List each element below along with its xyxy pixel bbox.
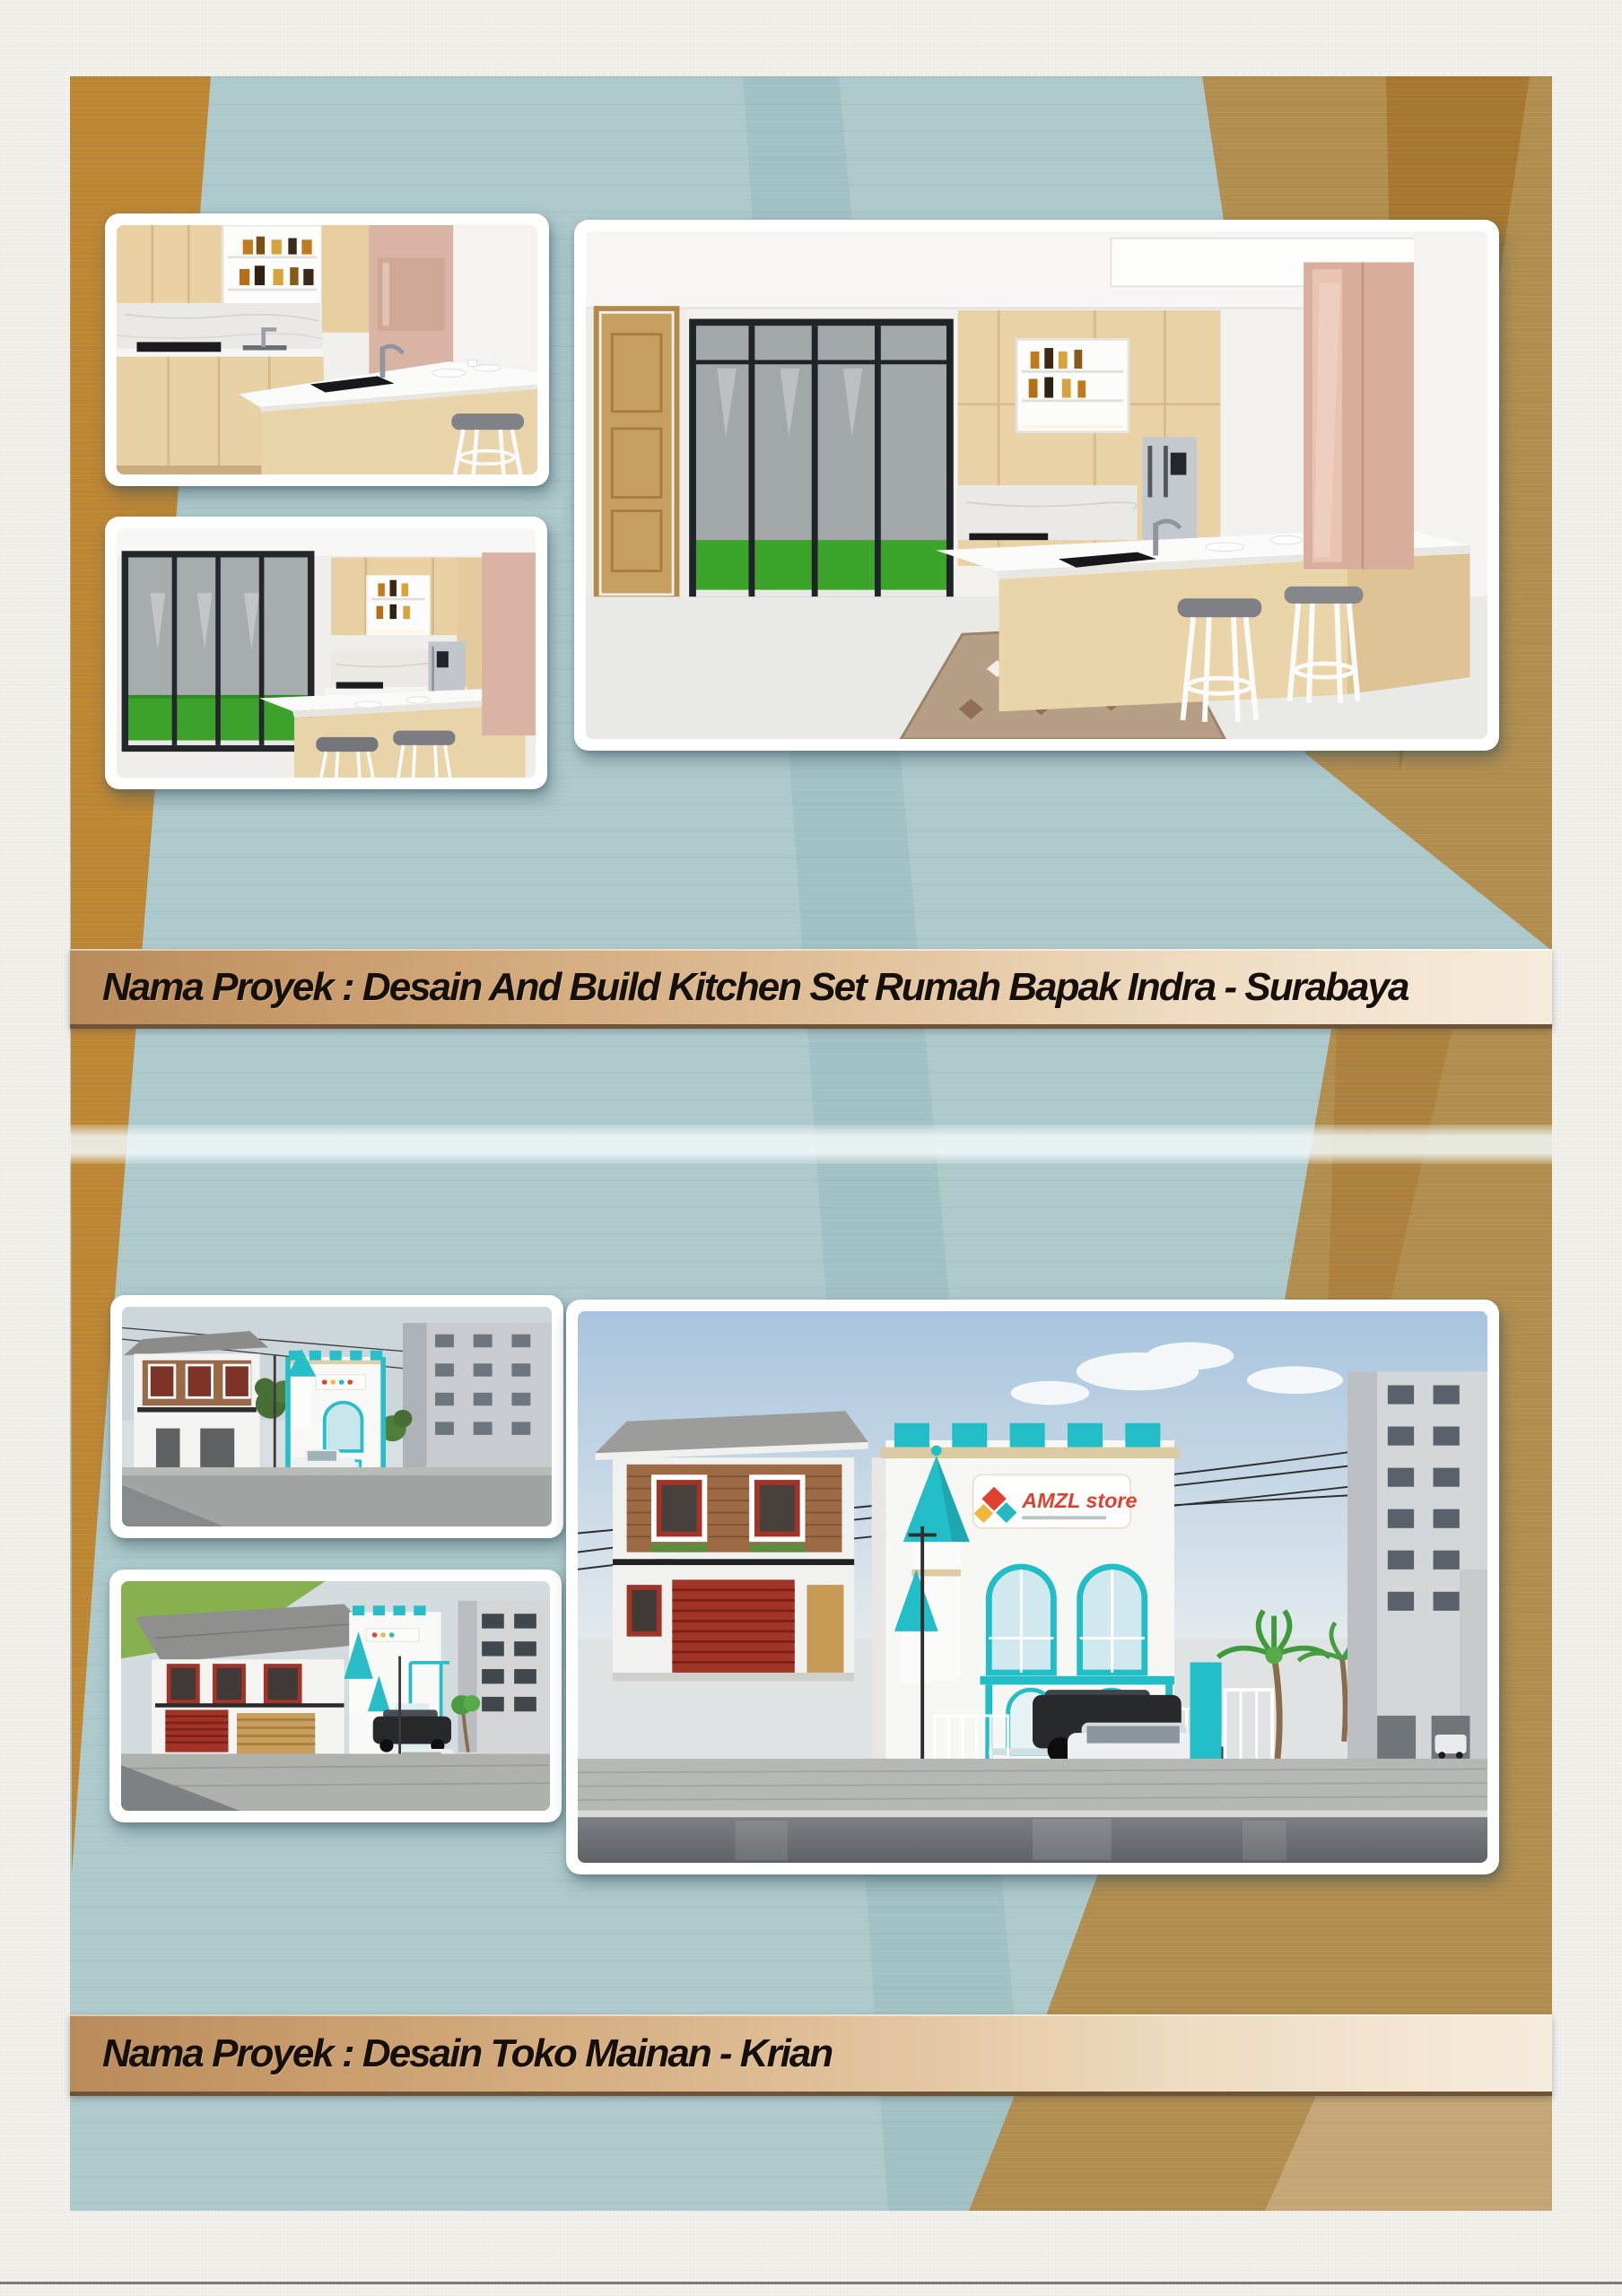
toystore-street-illustration bbox=[122, 1307, 552, 1526]
photo-kitchen-closeup bbox=[105, 213, 549, 486]
portfolio-page: Nama Proyek : Desain And Build Kitchen S… bbox=[0, 0, 1622, 2296]
copper-cabinet bbox=[1304, 262, 1414, 569]
kitchen-closeup-illustration bbox=[117, 225, 537, 474]
toystore-main-illustration: AMZL store bbox=[578, 1311, 1487, 1863]
toystore-perspective-illustration bbox=[121, 1581, 550, 1811]
project-banner-kitchen-label: Nama Proyek : Desain And Build Kitchen S… bbox=[70, 968, 1408, 1007]
refrigerator bbox=[428, 641, 465, 696]
page-bottom-edge-line bbox=[0, 2282, 1622, 2284]
glass-wall bbox=[689, 319, 954, 604]
glass-sliding-door bbox=[122, 551, 315, 752]
road bbox=[122, 1467, 552, 1526]
photo-kitchen-main bbox=[574, 220, 1499, 751]
kitchen-glass-door-illustration bbox=[117, 528, 536, 778]
apartment-building bbox=[451, 1601, 550, 1752]
project-banner-toko-mainan: Nama Proyek : Desain Toko Mainan - Krian bbox=[70, 2014, 1552, 2096]
street bbox=[578, 1759, 1487, 1863]
kitchen-main-illustration bbox=[586, 231, 1487, 739]
photo-toystore-perspective bbox=[109, 1570, 562, 1822]
pavement bbox=[121, 1753, 550, 1811]
store-sign-text: AMZL store bbox=[1021, 1489, 1137, 1512]
divider-strip bbox=[70, 1125, 1552, 1164]
project-banner-toko-mainan-label: Nama Proyek : Desain Toko Mainan - Krian bbox=[70, 2034, 832, 2074]
pink-cabinet bbox=[482, 552, 536, 735]
apartment-building bbox=[1347, 1371, 1487, 1778]
project-banner-kitchen: Nama Proyek : Desain And Build Kitchen S… bbox=[70, 949, 1552, 1029]
store-sign: AMZL store bbox=[973, 1474, 1138, 1527]
photo-toystore-street bbox=[110, 1295, 563, 1538]
apartment-building bbox=[403, 1323, 552, 1481]
photo-toystore-main: AMZL store bbox=[566, 1300, 1499, 1874]
photo-kitchen-glass-door bbox=[105, 517, 547, 789]
refrigerator bbox=[1143, 437, 1197, 540]
side-wall-and-gate bbox=[1190, 1662, 1273, 1765]
wooden-door bbox=[597, 309, 677, 598]
